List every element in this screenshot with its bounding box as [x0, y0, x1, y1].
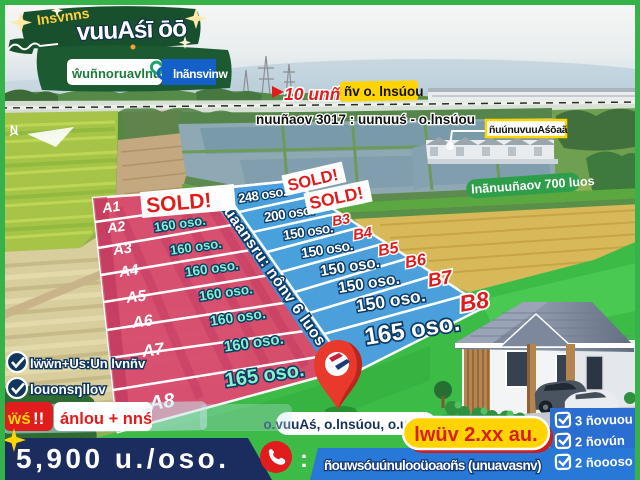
svg-text:A2: A2: [105, 218, 126, 237]
svg-text:nuuñaov 3017 : uunuuś - o.lnsú: nuuñaov 3017 : uunuuś - o.lnsúou: [256, 112, 475, 127]
svg-text:5,900 u./oso.: 5,900 u./oso.: [16, 443, 230, 474]
svg-text:3 ñovuou: 3 ñovuou: [575, 411, 633, 428]
svg-text:2 ñoooso: 2 ñoooso: [575, 453, 633, 470]
svg-text:10 unñ: 10 unñ: [284, 84, 341, 104]
svg-text:ẅś: ẅś: [7, 409, 31, 428]
svg-text:A6: A6: [130, 312, 154, 332]
svg-text:2 ñovún: 2 ñovún: [575, 433, 625, 450]
svg-text:B6: B6: [404, 250, 429, 272]
svg-text:B4: B4: [352, 224, 374, 244]
svg-text:ñv o. lnsúou: ñv o. lnsúou: [344, 84, 424, 99]
svg-text:!!: !!: [33, 409, 44, 428]
svg-text:vuuAśī ōō: vuuAśī ōō: [76, 15, 187, 46]
svg-text:B3: B3: [331, 210, 352, 229]
svg-text:A4: A4: [117, 261, 140, 281]
svg-text:lnãnsvinw: lnãnsvinw: [173, 67, 228, 81]
svg-text:A1: A1: [100, 198, 121, 217]
svg-text:A5: A5: [124, 287, 147, 307]
svg-text:lẅẅn+Us:Un lvnñv: lẅẅn+Us:Un lvnñv: [30, 356, 146, 371]
svg-text:B8: B8: [457, 286, 491, 317]
svg-text:lwüv 2.xx au.: lwüv 2.xx au.: [414, 424, 537, 446]
svg-text:ánlou + nnś: ánlou + nnś: [60, 410, 152, 428]
svg-text:louonsŋllov: louonsŋllov: [30, 382, 106, 397]
svg-text::: :: [300, 446, 308, 473]
svg-text:ñouwsóuúnulooüoaoñs (unuavasnv: ñouwsóuúnulooüoaoñs (unuavasnv): [324, 458, 541, 473]
svg-text:ñuúnuvuuAśōaã: ñuúnuvuuAśōaã: [489, 124, 568, 136]
svg-text:A3: A3: [111, 241, 133, 260]
